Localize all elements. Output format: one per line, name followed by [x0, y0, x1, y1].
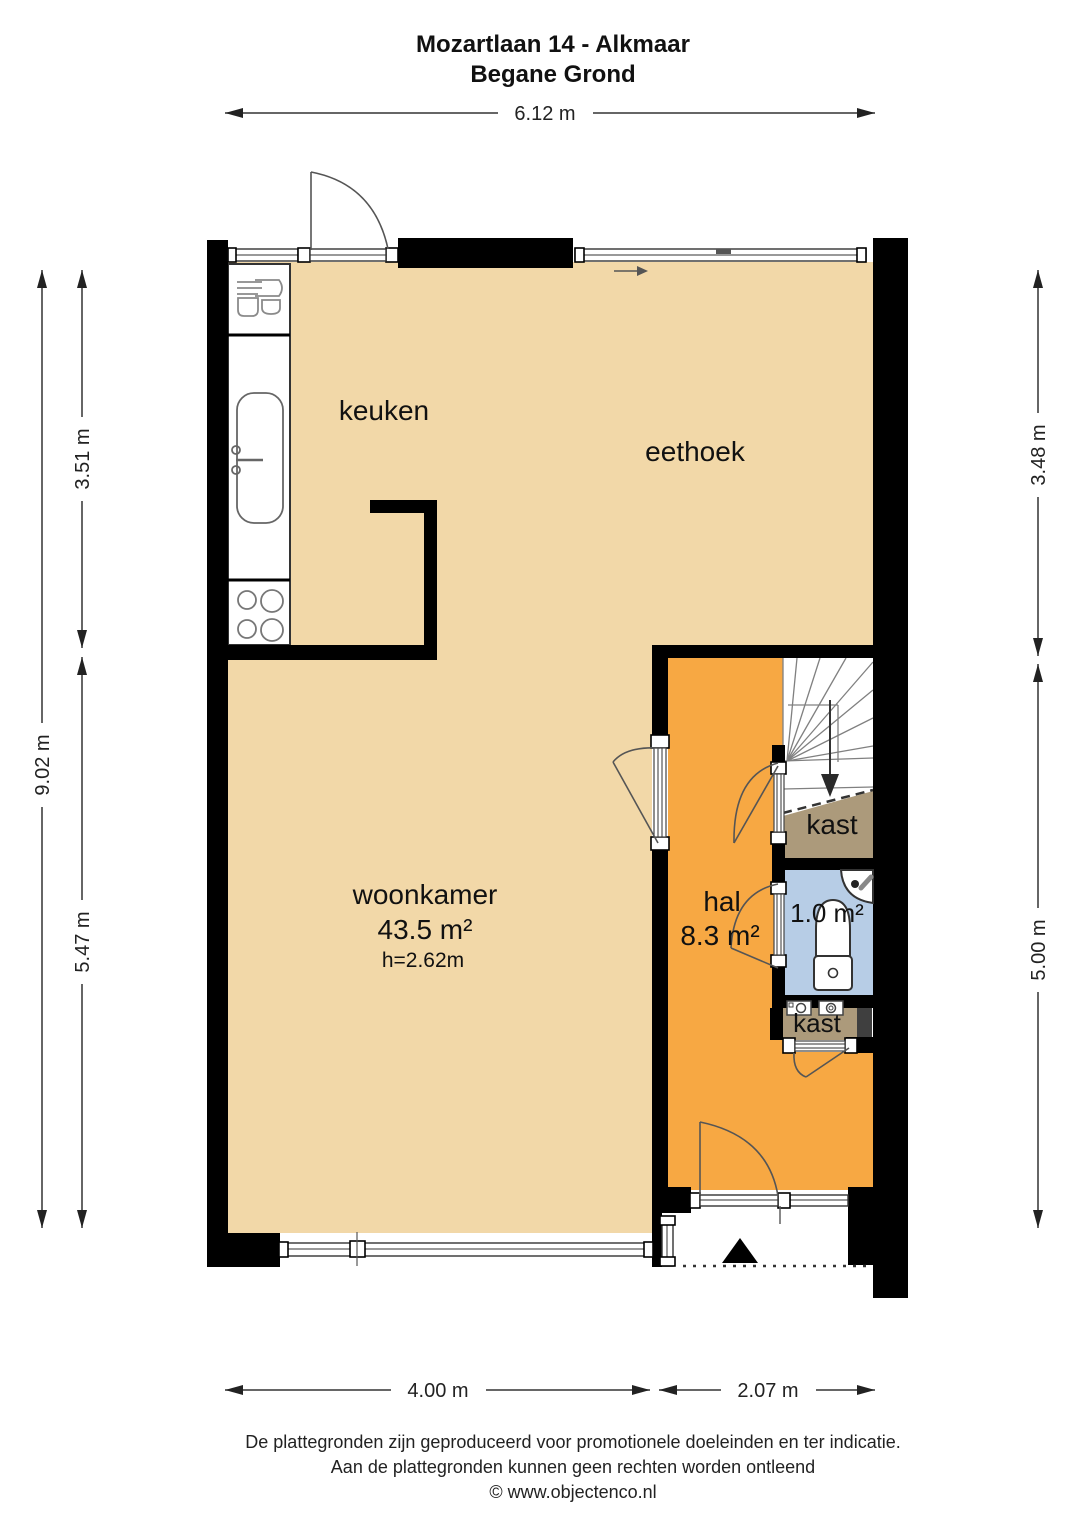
floorplan-page: keuken eethoek woonkamer 43.5 m² h=2.62m… — [0, 0, 1080, 1527]
wall-kitchen-divider — [228, 645, 437, 660]
title-address: Mozartlaan 14 - Alkmaar — [416, 31, 690, 58]
svg-text:3.51 m: 3.51 m — [72, 428, 94, 489]
label-woonkamer: woonkamer — [352, 879, 498, 910]
dim-right-lower: 5.00 m — [1025, 664, 1051, 1228]
wall-kitchen-return — [424, 500, 437, 658]
floorplan-drawing: keuken eethoek woonkamer 43.5 m² h=2.62m… — [0, 0, 1080, 1527]
wall-below-stairs — [772, 858, 873, 870]
window-porch-side — [660, 1216, 675, 1266]
label-hal: hal — [703, 886, 740, 917]
window-livingroom-bottom — [279, 1232, 653, 1266]
label-kast-utility: kast — [793, 1008, 841, 1038]
svg-text:6.12 m: 6.12 m — [514, 103, 575, 125]
floor-hal-entrance — [668, 1052, 873, 1190]
title-floor: Begane Grond — [470, 61, 635, 88]
dim-left-upper: 3.51 m — [69, 270, 95, 648]
door-kitchen-exterior — [298, 172, 398, 262]
label-kast-understairs: kast — [806, 809, 858, 840]
svg-text:9.02 m: 9.02 m — [32, 734, 54, 795]
label-woonkamer-area: 43.5 m² — [378, 914, 473, 945]
label-eethoek: eethoek — [645, 436, 746, 467]
wall-hal-top — [652, 645, 873, 658]
window-top-left — [228, 248, 298, 262]
svg-text:3.48 m: 3.48 m — [1028, 424, 1050, 485]
wall-hal-left-lower — [652, 850, 668, 1213]
window-mullion-tick — [716, 249, 731, 254]
wall-entrance-left — [652, 1187, 691, 1213]
footer-copyright: © www.objectenco.nl — [489, 1482, 656, 1502]
dim-right-upper: 3.48 m — [1025, 270, 1051, 656]
wall-bottom-left-corner — [207, 1233, 280, 1267]
door-swing-arc — [311, 172, 388, 249]
svg-text:2.07 m: 2.07 m — [737, 1380, 798, 1402]
window-entrance-sidelight — [790, 1195, 848, 1206]
svg-text:4.00 m: 4.00 m — [407, 1380, 468, 1402]
floor-keuken-eethoek — [228, 262, 873, 645]
dim-left-lower: 5.47 m — [69, 657, 95, 1228]
wall-top-middle — [398, 238, 573, 268]
svg-text:5.00 m: 5.00 m — [1028, 919, 1050, 980]
label-keuken: keuken — [339, 395, 429, 426]
label-toilet-area: 1.0 m² — [790, 898, 864, 928]
duct-shaft — [857, 1004, 872, 1037]
dim-left-total: 9.02 m — [29, 270, 55, 1228]
label-hal-area: 8.3 m² — [680, 920, 759, 951]
label-woonkamer-height: h=2.62m — [382, 949, 464, 972]
porch — [683, 1238, 870, 1266]
window-top-right — [575, 248, 866, 262]
wall-left — [207, 240, 228, 1267]
dim-top-width: 6.12 m — [225, 100, 875, 126]
footer-disclaimer-2: Aan de plattegronden kunnen geen rechten… — [331, 1457, 815, 1477]
dim-bottom-left: 4.00 m — [225, 1377, 650, 1403]
entrance-triangle-marker — [722, 1238, 758, 1263]
plan-footer: De plattegronden zijn geproduceerd voor … — [245, 1432, 900, 1502]
svg-text:5.47 m: 5.47 m — [72, 911, 94, 972]
wall-entrance-right-corner — [848, 1187, 873, 1265]
dim-bottom-right: 2.07 m — [659, 1377, 875, 1403]
footer-disclaimer-1: De plattegronden zijn geproduceerd voor … — [245, 1432, 900, 1452]
plan-title: Mozartlaan 14 - Alkmaar Begane Grond — [416, 31, 690, 88]
wall-hal-left-upper — [652, 645, 668, 735]
wall-kitchen-spur — [370, 500, 424, 513]
wall-kast-left — [770, 1008, 783, 1040]
wall-right — [873, 238, 908, 1298]
kitchen-counter — [228, 264, 290, 645]
